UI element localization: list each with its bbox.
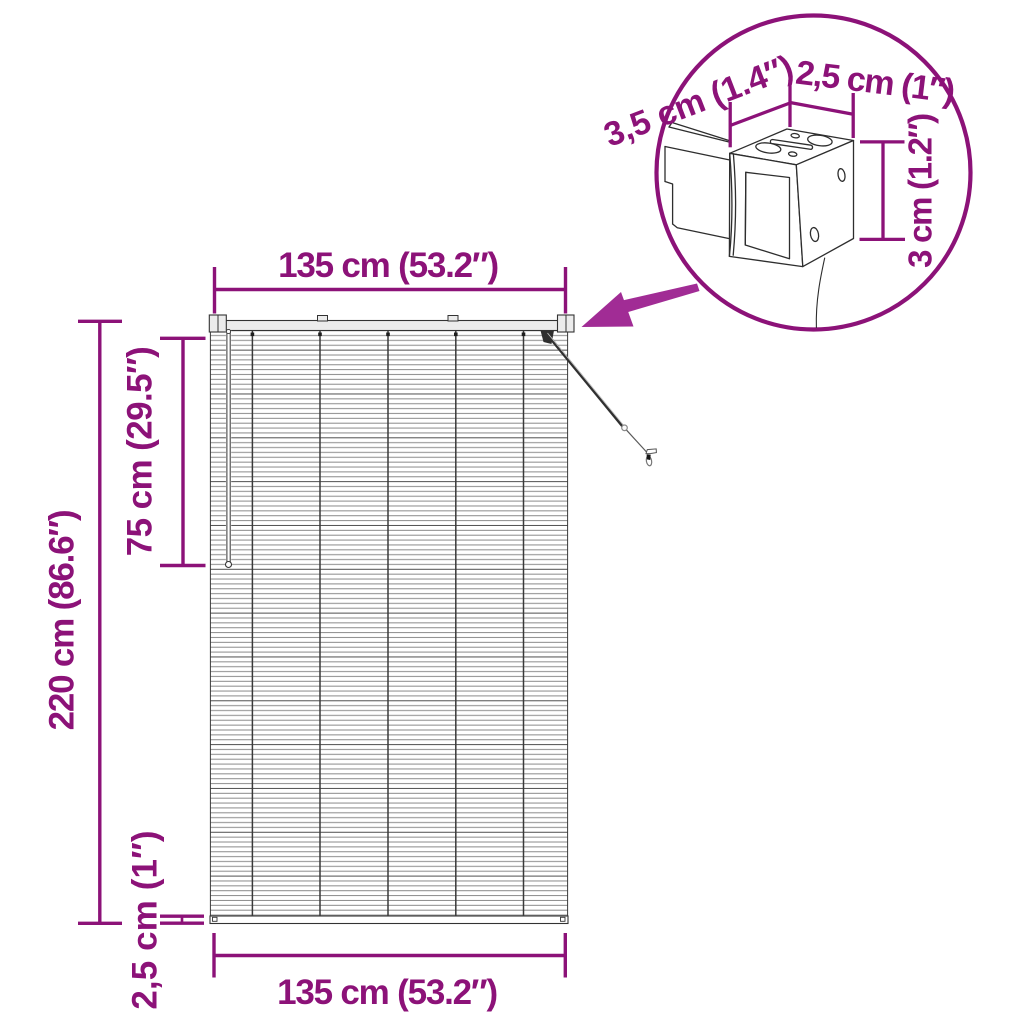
svg-text:3 cm (1.2″): 3 cm (1.2″)	[902, 114, 939, 268]
svg-text:2,5 cm (1″): 2,5 cm (1″)	[126, 830, 165, 1009]
svg-text:135 cm (53.2″): 135 cm (53.2″)	[278, 246, 498, 285]
svg-text:135 cm (53.2″): 135 cm (53.2″)	[277, 973, 497, 1012]
svg-text:220 cm (86.6″): 220 cm (86.6″)	[43, 511, 82, 731]
svg-text:75 cm (29.5″): 75 cm (29.5″)	[121, 347, 160, 556]
svg-text:2,5 cm (1″): 2,5 cm (1″)	[794, 54, 956, 111]
